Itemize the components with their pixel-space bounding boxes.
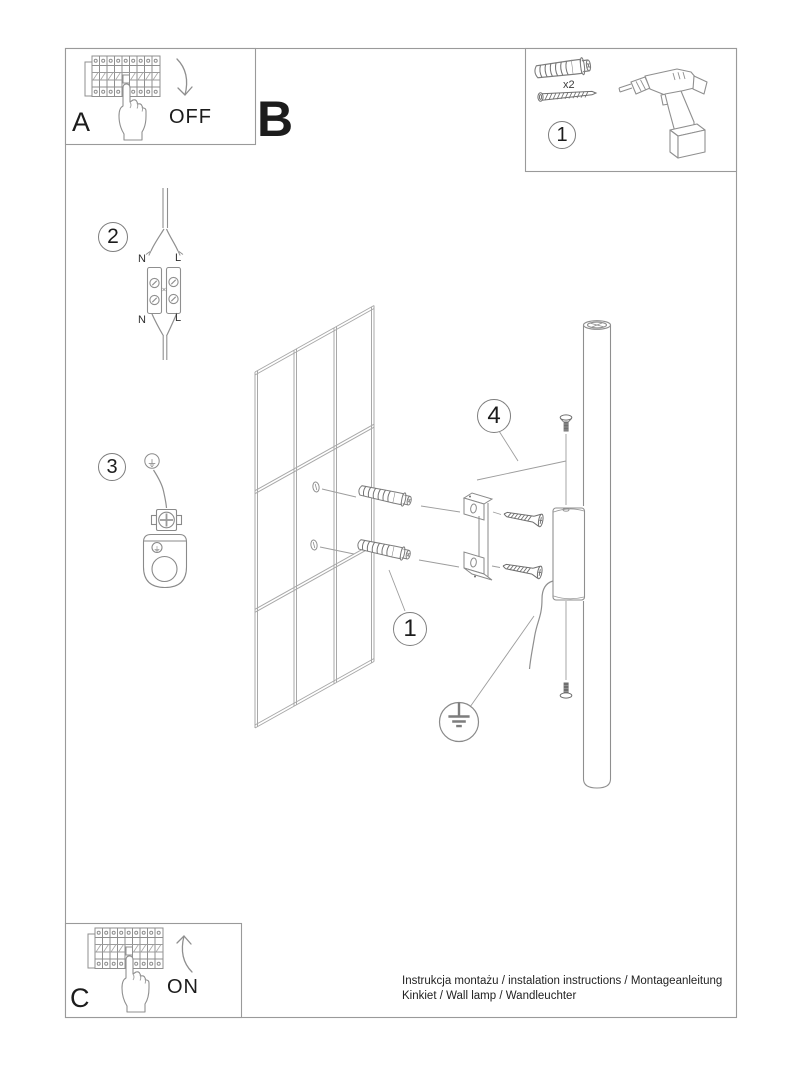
wall-hole (310, 482, 320, 551)
tiled-wall (255, 306, 374, 729)
mains-cable-bottom (163, 336, 167, 360)
set-screw-top (560, 415, 572, 432)
final-mount-step-badge: 4 (477, 399, 511, 433)
ground-symbol-icon (145, 454, 159, 468)
canopy-bracket (144, 535, 187, 588)
ground-terminal (152, 510, 182, 531)
parts-step-badge: 1 (548, 121, 576, 149)
anchors-step-badge: 1 (393, 612, 427, 646)
ground-wire (154, 470, 167, 508)
instruction-sheet: A B C OFF ON 1 2 3 4 1 N L N L x2 Instru… (0, 0, 800, 1070)
footer-title-line1: Instrukcja montażu / instalation instruc… (402, 974, 722, 989)
step-a-label: A (72, 109, 90, 136)
step-c-label: C (70, 985, 90, 1012)
lamp-housing (553, 508, 585, 600)
grounding-step-badge: 3 (98, 453, 126, 481)
wire-split-bottom (152, 313, 177, 336)
expansion-anchor (358, 483, 413, 507)
anchor-quantity-label: x2 (563, 80, 575, 91)
mains-cable-top (163, 188, 168, 228)
neutral-label-bottom: N (138, 315, 146, 326)
step-b-label: B (257, 94, 293, 144)
footer-title-line2: Kinkiet / Wall lamp / Wandleuchter (402, 989, 576, 1004)
mounting-screw (502, 560, 543, 579)
on-label: ON (167, 977, 199, 997)
terminal-block (148, 268, 181, 314)
wiring-step-badge: 2 (98, 222, 128, 252)
live-label-bottom: L (175, 313, 181, 324)
expansion-anchor (357, 537, 412, 561)
ground-symbol-icon (440, 703, 479, 742)
outer-frame (66, 49, 737, 1018)
live-label-top: L (175, 253, 181, 264)
mounting-screw (503, 508, 544, 527)
lamp-cable (530, 581, 554, 669)
off-label: OFF (169, 107, 212, 127)
mounting-bracket (464, 493, 492, 580)
neutral-label-top: N (138, 254, 146, 265)
lamp-tube (584, 321, 611, 788)
set-screw-bottom (560, 683, 572, 699)
instruction-line-art (0, 0, 800, 1070)
